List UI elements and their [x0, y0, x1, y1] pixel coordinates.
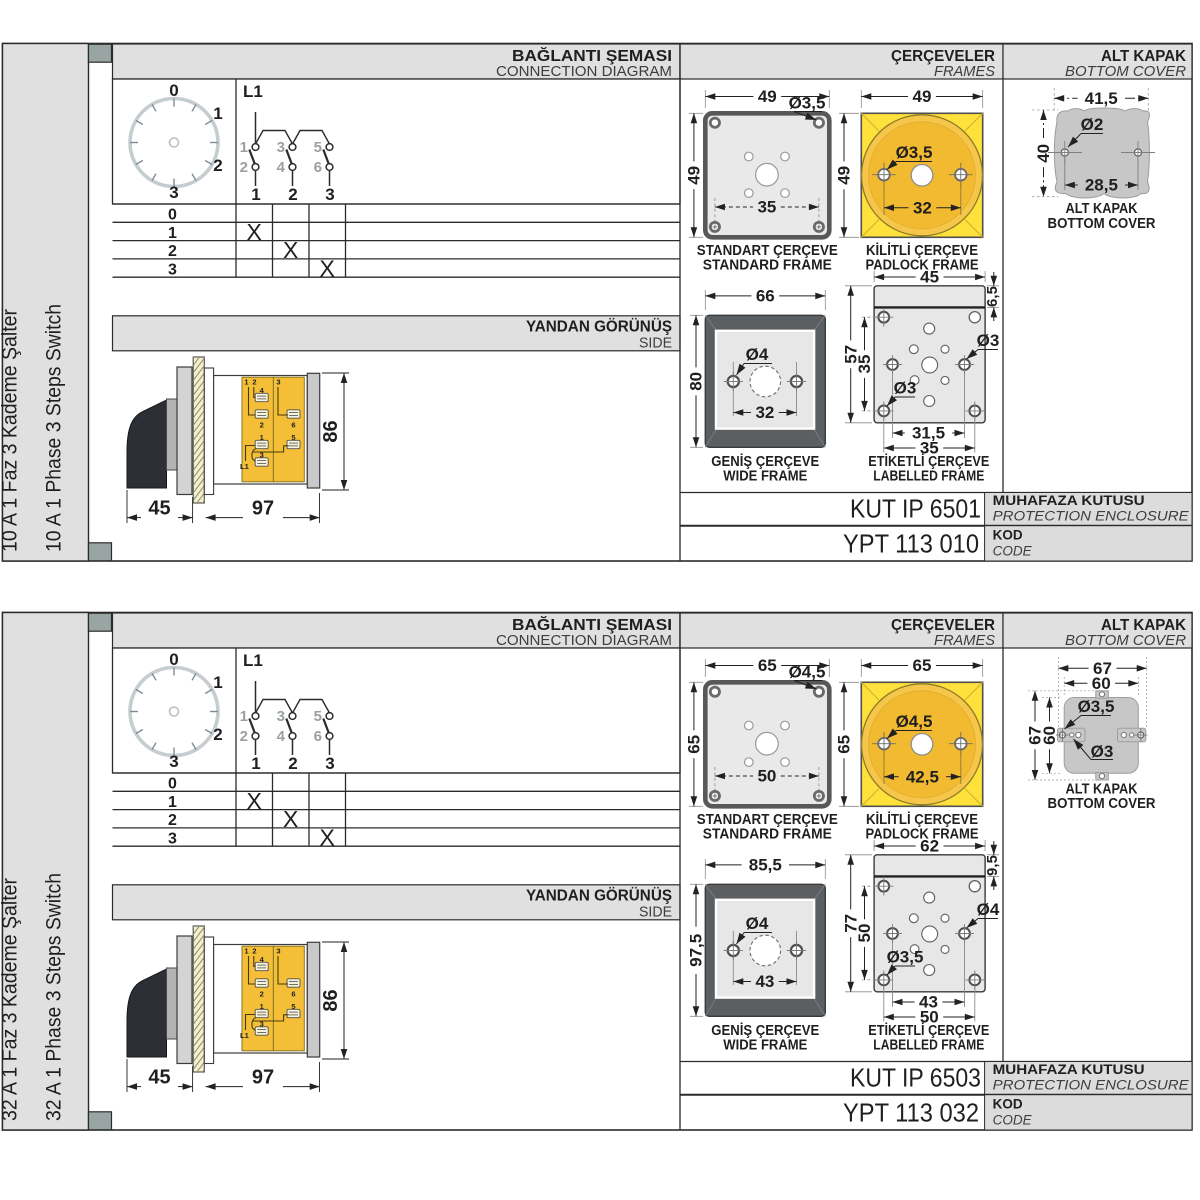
svg-text:3: 3 — [325, 185, 334, 204]
svg-text:5: 5 — [314, 139, 322, 156]
svg-text:WIDE FRAME: WIDE FRAME — [723, 469, 807, 485]
svg-text:X: X — [247, 219, 262, 245]
svg-text:1: 1 — [251, 185, 260, 204]
svg-text:FRAMES: FRAMES — [934, 63, 995, 80]
svg-text:STANDARD FRAME: STANDARD FRAME — [703, 258, 832, 274]
svg-text:Ø3,5: Ø3,5 — [896, 143, 933, 162]
svg-text:65: 65 — [835, 735, 854, 754]
svg-text:60: 60 — [1040, 726, 1059, 745]
svg-text:X: X — [283, 237, 298, 263]
svg-text:65: 65 — [913, 656, 932, 675]
svg-text:3: 3 — [325, 754, 334, 773]
svg-text:1: 1 — [244, 947, 248, 956]
svg-text:Ø3: Ø3 — [1091, 742, 1114, 761]
svg-text:CONNECTION DIAGRAM: CONNECTION DIAGRAM — [496, 632, 672, 649]
svg-text:L1: L1 — [243, 82, 263, 101]
svg-text:KİLİTLİ ÇERÇEVE: KİLİTLİ ÇERÇEVE — [866, 242, 978, 259]
svg-text:85,5: 85,5 — [749, 856, 782, 875]
svg-text:GENİŞ ÇERÇEVE: GENİŞ ÇERÇEVE — [711, 453, 819, 470]
svg-text:65: 65 — [758, 656, 777, 675]
svg-text:Ø4: Ø4 — [746, 914, 769, 933]
svg-text:Ø4,5: Ø4,5 — [789, 663, 826, 682]
svg-text:2: 2 — [260, 990, 264, 999]
svg-text:28,5: 28,5 — [1085, 176, 1118, 195]
svg-text:65: 65 — [685, 735, 704, 754]
svg-text:35: 35 — [757, 198, 776, 217]
svg-text:1: 1 — [168, 794, 177, 811]
svg-text:3: 3 — [277, 708, 285, 725]
svg-text:2: 2 — [252, 947, 256, 956]
svg-text:32 A 1 Phase 3 Steps Switch: 32 A 1 Phase 3 Steps Switch — [43, 873, 66, 1121]
svg-text:1: 1 — [251, 754, 260, 773]
svg-text:2: 2 — [288, 754, 297, 773]
svg-text:0: 0 — [169, 650, 178, 669]
svg-text:3: 3 — [168, 261, 177, 278]
svg-text:Ø3,5: Ø3,5 — [1078, 697, 1115, 716]
svg-text:KUT IP 6503: KUT IP 6503 — [850, 1063, 981, 1093]
svg-text:3: 3 — [276, 378, 280, 387]
svg-text:2: 2 — [213, 156, 222, 175]
svg-text:BOTTOM COVER: BOTTOM COVER — [1048, 216, 1156, 232]
svg-text:X: X — [283, 806, 298, 832]
svg-text:62: 62 — [920, 837, 939, 856]
svg-text:2: 2 — [240, 159, 248, 176]
svg-text:Ø3,5: Ø3,5 — [789, 94, 826, 113]
svg-text:50: 50 — [757, 767, 776, 786]
svg-text:2: 2 — [168, 812, 177, 829]
svg-text:3: 3 — [276, 947, 280, 956]
svg-text:4: 4 — [277, 159, 286, 176]
svg-text:2: 2 — [240, 728, 248, 745]
svg-text:X: X — [320, 824, 335, 850]
svg-text:PROTECTION ENCLOSURE: PROTECTION ENCLOSURE — [993, 509, 1190, 524]
svg-text:Ø4: Ø4 — [746, 345, 769, 364]
svg-text:5: 5 — [291, 1002, 295, 1011]
svg-text:X: X — [247, 788, 262, 814]
svg-text:43: 43 — [755, 972, 774, 991]
svg-text:42,5: 42,5 — [906, 767, 939, 786]
svg-text:0: 0 — [168, 776, 177, 793]
svg-text:0: 0 — [169, 81, 178, 100]
svg-text:PROTECTION ENCLOSURE: PROTECTION ENCLOSURE — [993, 1078, 1190, 1093]
svg-text:5: 5 — [314, 708, 322, 725]
svg-text:YPT 113 032: YPT 113 032 — [843, 1098, 979, 1128]
svg-text:BOTTOM COVER: BOTTOM COVER — [1065, 632, 1186, 649]
svg-text:86: 86 — [320, 989, 342, 1011]
svg-text:BOTTOM COVER: BOTTOM COVER — [1065, 63, 1186, 80]
svg-text:3: 3 — [169, 183, 178, 202]
svg-text:41,5: 41,5 — [1085, 89, 1118, 108]
svg-text:L1: L1 — [240, 1031, 249, 1040]
svg-text:6: 6 — [291, 421, 295, 430]
svg-text:SIDE: SIDE — [639, 335, 672, 352]
svg-text:4: 4 — [277, 728, 286, 745]
svg-text:KOD: KOD — [993, 1097, 1023, 1112]
svg-text:10 A 1 Faz 3 Kademe Şalter: 10 A 1 Faz 3 Kademe Şalter — [0, 309, 22, 552]
svg-text:45: 45 — [148, 498, 170, 520]
svg-text:3: 3 — [168, 830, 177, 847]
svg-text:6,5: 6,5 — [984, 286, 1001, 307]
svg-text:Ø2: Ø2 — [1081, 115, 1104, 134]
svg-text:86: 86 — [320, 420, 342, 442]
svg-text:FRAMES: FRAMES — [934, 632, 995, 649]
svg-text:2: 2 — [260, 421, 264, 430]
svg-text:Ø3: Ø3 — [894, 379, 917, 398]
svg-text:Ø4,5: Ø4,5 — [896, 712, 933, 731]
svg-text:Ø3: Ø3 — [977, 331, 1000, 350]
svg-text:CONNECTION DIAGRAM: CONNECTION DIAGRAM — [496, 63, 672, 80]
svg-text:3: 3 — [260, 451, 264, 460]
svg-text:49: 49 — [913, 87, 932, 106]
svg-text:YANDAN GÖRÜNÜŞ: YANDAN GÖRÜNÜŞ — [526, 886, 672, 905]
svg-text:6: 6 — [314, 728, 322, 745]
svg-text:MUHAFAZA KUTUSU: MUHAFAZA KUTUSU — [993, 1062, 1145, 1077]
svg-text:LABELLED FRAME: LABELLED FRAME — [873, 469, 984, 485]
svg-text:2: 2 — [252, 378, 256, 387]
svg-text:32: 32 — [913, 198, 932, 217]
svg-text:GENİŞ ÇERÇEVE: GENİŞ ÇERÇEVE — [711, 1022, 819, 1039]
svg-text:CODE: CODE — [993, 544, 1033, 559]
svg-text:YPT 113 010: YPT 113 010 — [843, 529, 979, 559]
svg-text:40: 40 — [1034, 144, 1053, 163]
svg-text:1: 1 — [244, 378, 248, 387]
svg-text:1: 1 — [260, 1002, 264, 1011]
svg-text:0: 0 — [168, 207, 177, 224]
svg-text:ALT KAPAK: ALT KAPAK — [1066, 201, 1138, 217]
svg-text:Ø4: Ø4 — [977, 900, 1000, 919]
svg-text:49: 49 — [835, 166, 854, 185]
svg-text:2: 2 — [213, 725, 222, 744]
svg-text:KOD: KOD — [993, 528, 1023, 543]
svg-text:66: 66 — [756, 287, 775, 306]
svg-text:1: 1 — [213, 673, 222, 692]
svg-text:3: 3 — [260, 1020, 264, 1029]
svg-text:32: 32 — [755, 403, 774, 422]
svg-text:10 A 1 Phase 3 Steps Switch: 10 A 1 Phase 3 Steps Switch — [43, 304, 66, 552]
svg-text:MUHAFAZA KUTUSU: MUHAFAZA KUTUSU — [993, 493, 1145, 508]
svg-text:3: 3 — [277, 139, 285, 156]
svg-text:6: 6 — [314, 159, 322, 176]
svg-text:KİLİTLİ ÇERÇEVE: KİLİTLİ ÇERÇEVE — [866, 811, 978, 828]
svg-text:97,5: 97,5 — [687, 934, 706, 967]
svg-text:L1: L1 — [240, 462, 249, 471]
svg-text:STANDARD FRAME: STANDARD FRAME — [703, 827, 832, 843]
svg-text:1: 1 — [168, 225, 177, 242]
svg-text:9,5: 9,5 — [984, 855, 1001, 876]
svg-text:60: 60 — [1092, 674, 1111, 693]
svg-text:80: 80 — [687, 372, 706, 391]
svg-text:ETİKETLİ ÇERÇEVE: ETİKETLİ ÇERÇEVE — [868, 1022, 989, 1039]
svg-text:YANDAN GÖRÜNÜŞ: YANDAN GÖRÜNÜŞ — [526, 317, 672, 336]
svg-text:45: 45 — [148, 1067, 170, 1089]
svg-text:X: X — [320, 255, 335, 281]
svg-text:Ø3,5: Ø3,5 — [887, 948, 924, 967]
svg-text:49: 49 — [758, 87, 777, 106]
svg-text:SIDE: SIDE — [639, 904, 672, 921]
svg-text:97: 97 — [252, 1067, 274, 1089]
svg-text:KUT IP 6501: KUT IP 6501 — [850, 494, 981, 524]
svg-text:97: 97 — [252, 498, 274, 520]
svg-text:6: 6 — [291, 990, 295, 999]
svg-text:L1: L1 — [243, 651, 263, 670]
svg-text:1: 1 — [240, 708, 248, 725]
svg-text:3: 3 — [169, 752, 178, 771]
svg-text:2: 2 — [288, 185, 297, 204]
svg-text:LABELLED FRAME: LABELLED FRAME — [873, 1038, 984, 1054]
svg-text:50: 50 — [855, 924, 874, 943]
svg-text:ETİKETLİ ÇERÇEVE: ETİKETLİ ÇERÇEVE — [868, 453, 989, 470]
svg-text:45: 45 — [920, 268, 939, 287]
svg-text:35: 35 — [855, 355, 874, 374]
svg-text:5: 5 — [291, 433, 295, 442]
svg-text:1: 1 — [240, 139, 248, 156]
svg-text:1: 1 — [213, 104, 222, 123]
svg-text:49: 49 — [685, 166, 704, 185]
svg-text:32 A 1 Faz 3 Kademe Şalter: 32 A 1 Faz 3 Kademe Şalter — [0, 878, 22, 1121]
svg-text:2: 2 — [168, 243, 177, 260]
svg-text:BOTTOM COVER: BOTTOM COVER — [1048, 796, 1156, 812]
svg-text:1: 1 — [260, 433, 264, 442]
svg-text:WIDE FRAME: WIDE FRAME — [723, 1038, 807, 1054]
svg-text:CODE: CODE — [993, 1113, 1033, 1128]
